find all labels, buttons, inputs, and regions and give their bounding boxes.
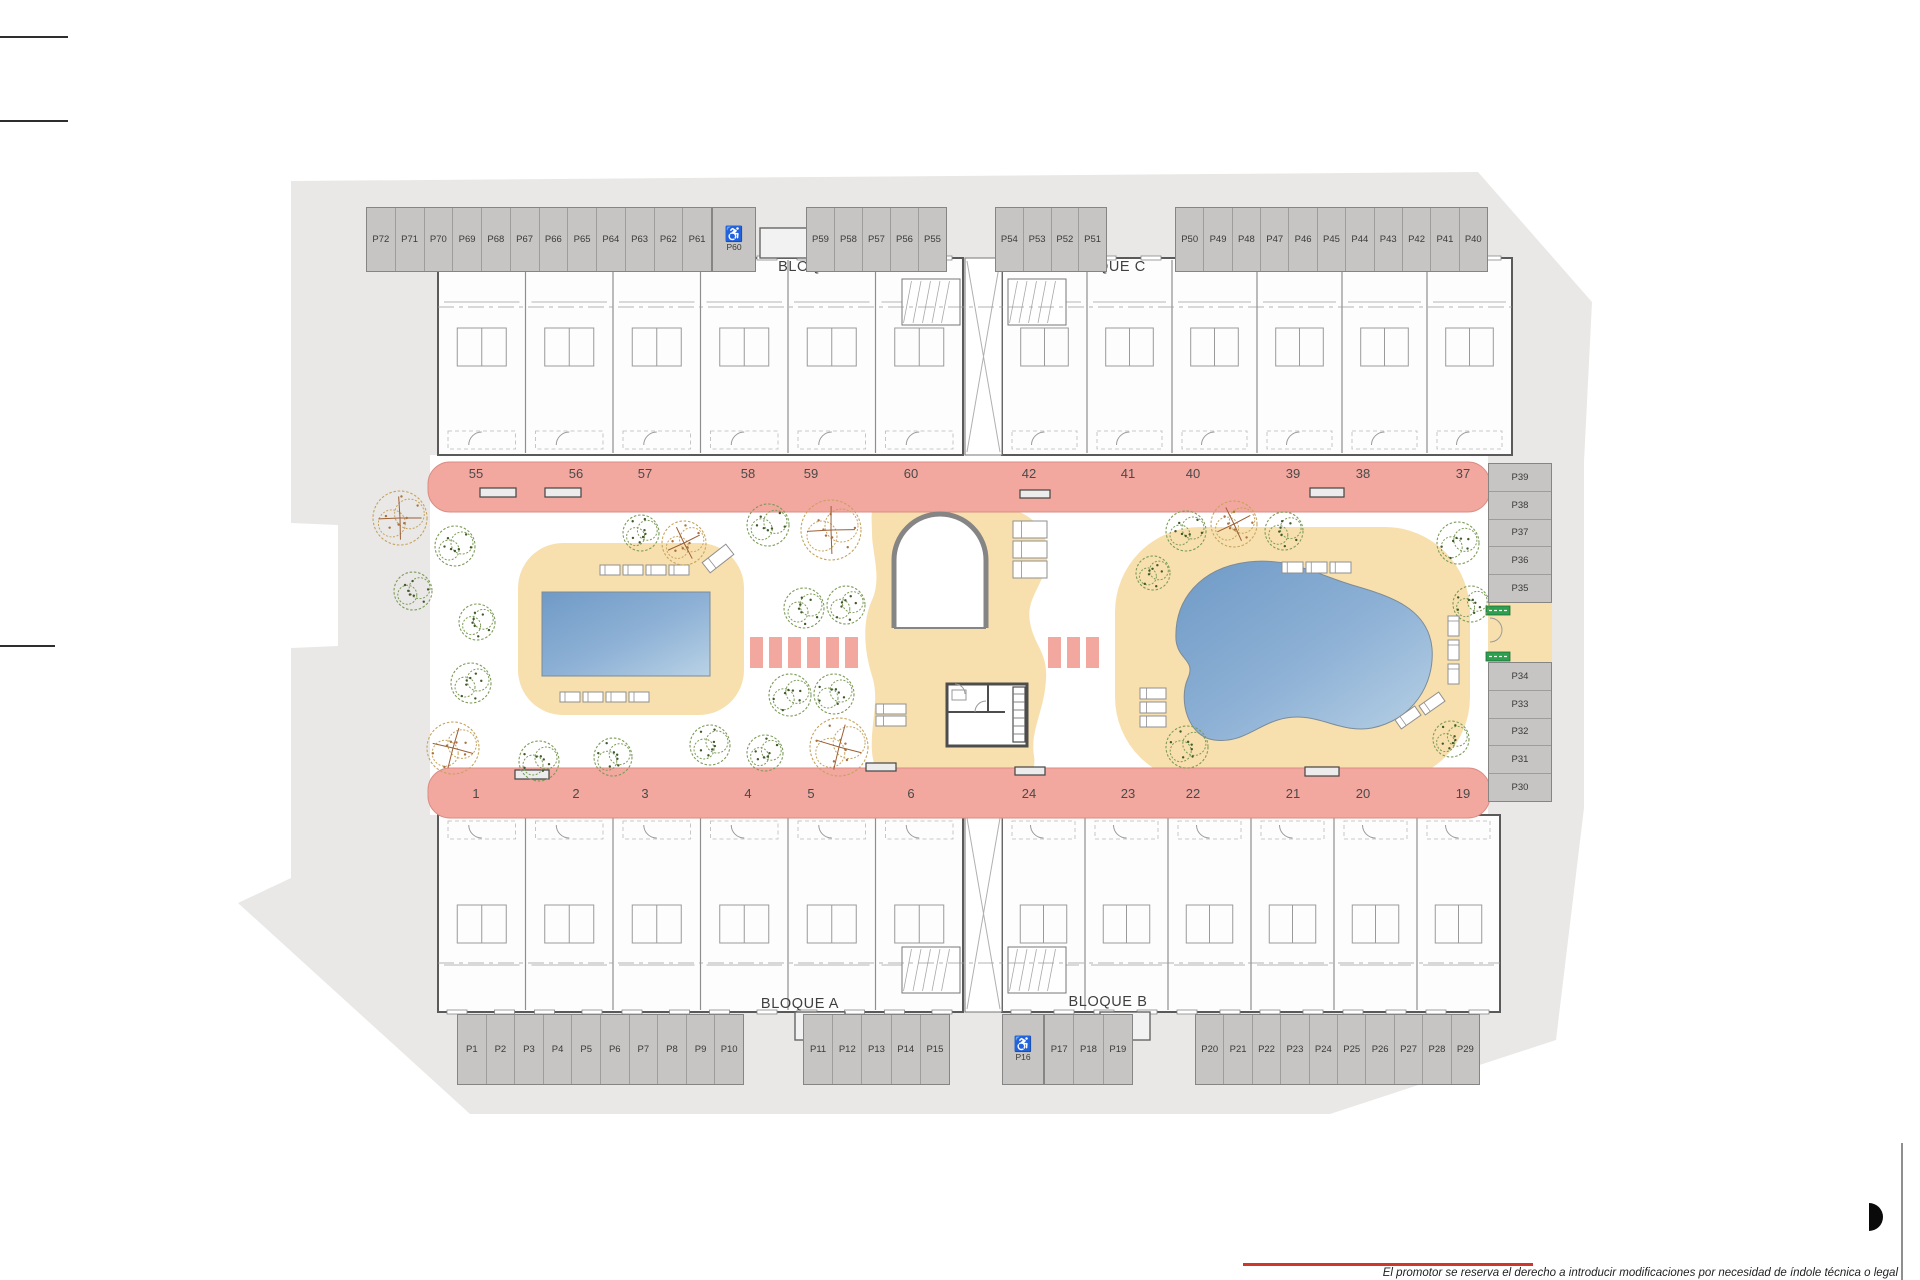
parking-stall-label: P62	[660, 234, 677, 245]
parking-stall: P4	[544, 1015, 573, 1084]
unit-number: 59	[804, 466, 818, 481]
unit-number: 4	[744, 786, 751, 801]
parking-stall-label: P36	[1512, 555, 1529, 566]
parking-stall-label: P48	[1238, 234, 1255, 245]
parking-stall: P24	[1310, 1015, 1338, 1084]
block-label-a: BLOQUE A	[761, 996, 839, 1012]
parking-stall-label: P30	[1512, 782, 1529, 793]
unit-number: 3	[641, 786, 648, 801]
unit-number: 57	[638, 466, 652, 481]
parking-stall: P58	[835, 208, 863, 271]
service-building	[947, 684, 1027, 746]
parking-stall: P20	[1196, 1015, 1224, 1084]
page-tick-mid	[0, 645, 55, 647]
unit-number: 1	[472, 786, 479, 801]
parking-stall: P25	[1338, 1015, 1366, 1084]
parking-stall-label: P25	[1343, 1044, 1360, 1055]
unit-number: 6	[907, 786, 914, 801]
parking-stall: P51	[1079, 208, 1106, 271]
parking-stall-label: P61	[689, 234, 706, 245]
parking-stall: P64	[597, 208, 626, 271]
parking-stall-label: P60	[726, 242, 741, 252]
unit-number: 23	[1121, 786, 1135, 801]
parking-stall-label: P24	[1315, 1044, 1332, 1055]
accessible-parking-stall: ♿P60	[713, 208, 755, 271]
parking-stall: P49	[1204, 208, 1232, 271]
parking-stall: P48	[1233, 208, 1261, 271]
parking-stall-label: P13	[868, 1044, 885, 1055]
site-plan-canvas: El promotor se reserva el derecho a intr…	[0, 0, 1920, 1280]
parking-stall-label: P26	[1372, 1044, 1389, 1055]
parking-stall-label: P32	[1512, 726, 1529, 737]
parking-stall: P67	[511, 208, 540, 271]
parking-stall-label: P6	[609, 1044, 621, 1055]
parking-stall: P57	[863, 208, 891, 271]
parking-stall-label: P39	[1512, 472, 1529, 483]
unit-number: 41	[1121, 466, 1135, 481]
parking-stall: P40	[1460, 208, 1487, 271]
parking-stall: P12	[833, 1015, 862, 1084]
parking-stall: P45	[1318, 208, 1346, 271]
parking-stall: P10	[715, 1015, 743, 1084]
site-plan-drawing	[0, 0, 1920, 1280]
parking-stall-label: P16	[1015, 1052, 1030, 1062]
unit-number: 5	[807, 786, 814, 801]
unit-number: 38	[1356, 466, 1370, 481]
parking-stall-label: P27	[1400, 1044, 1417, 1055]
parking-stall: P62	[655, 208, 684, 271]
parking-stall-label: P67	[516, 234, 533, 245]
page-tick-top2	[0, 120, 68, 122]
parking-stall-label: P53	[1029, 234, 1046, 245]
parking-stall-label: P65	[574, 234, 591, 245]
parking-stall: P17	[1045, 1015, 1074, 1084]
parking-stall-label: P28	[1429, 1044, 1446, 1055]
parking-stall: P39	[1489, 464, 1551, 492]
parking-stall-label: P5	[580, 1044, 592, 1055]
parking-stall: P63	[626, 208, 655, 271]
unit-number: 21	[1286, 786, 1300, 801]
parking-stall-label: P64	[602, 234, 619, 245]
parking-stall-label: P52	[1056, 234, 1073, 245]
parking-stall: P65	[568, 208, 597, 271]
parking-stall-label: P34	[1512, 671, 1529, 682]
parking-stall-label: P29	[1457, 1044, 1474, 1055]
parking-stall-label: P10	[721, 1044, 738, 1055]
parking-stall-label: P15	[926, 1044, 943, 1055]
accessible-parking-stall: ♿P16	[1003, 1015, 1043, 1084]
unit-number: 20	[1356, 786, 1370, 801]
parking-stall-label: P70	[430, 234, 447, 245]
unit-number: 42	[1022, 466, 1036, 481]
parking-group-top_right: P50P49P48P47P46P45P44P43P42P41P40	[1175, 207, 1488, 272]
parking-stall: P61	[683, 208, 711, 271]
parking-stall: P66	[540, 208, 569, 271]
parking-stall: P47	[1261, 208, 1289, 271]
parking-stall-label: P20	[1201, 1044, 1218, 1055]
parking-stall-label: P14	[897, 1044, 914, 1055]
parking-stall-label: P22	[1258, 1044, 1275, 1055]
parking-group-top_left_accessible: ♿P60	[712, 207, 756, 272]
parking-group-top_mid: P59P58P57P56P55	[806, 207, 947, 272]
parking-group-right_upper: P39P38P37P36P35	[1488, 463, 1552, 603]
unit-number: 58	[741, 466, 755, 481]
parking-stall-label: P68	[487, 234, 504, 245]
parking-stall-label: P43	[1380, 234, 1397, 245]
parking-stall: P44	[1346, 208, 1374, 271]
parking-stall: P46	[1289, 208, 1317, 271]
left-pool	[542, 592, 710, 676]
parking-stall-label: P63	[631, 234, 648, 245]
parking-stall: P31	[1489, 746, 1551, 774]
parking-group-bottom_mid: P11P12P13P14P15	[803, 1014, 950, 1085]
parking-stall-label: P59	[812, 234, 829, 245]
parking-stall: P14	[892, 1015, 921, 1084]
parking-stall: P21	[1224, 1015, 1252, 1084]
parking-stall-label: P44	[1351, 234, 1368, 245]
parking-stall-label: P7	[638, 1044, 650, 1055]
parking-stall-label: P40	[1465, 234, 1482, 245]
page-tick-top1	[0, 36, 68, 38]
parking-stall: P9	[687, 1015, 716, 1084]
parking-stall-label: P54	[1001, 234, 1018, 245]
parking-stall: P56	[891, 208, 919, 271]
parking-stall-label: P55	[924, 234, 941, 245]
parking-stall: P34	[1489, 663, 1551, 691]
parking-stall: P1	[458, 1015, 487, 1084]
parking-stall: P53	[1024, 208, 1052, 271]
parking-stall-label: P37	[1512, 527, 1529, 538]
parking-stall: P29	[1452, 1015, 1479, 1084]
parking-stall-label: P3	[523, 1044, 535, 1055]
parking-stall: P23	[1281, 1015, 1309, 1084]
parking-stall: P26	[1366, 1015, 1394, 1084]
parking-stall: P43	[1375, 208, 1403, 271]
parking-stall: P28	[1423, 1015, 1451, 1084]
parking-stall-label: P4	[552, 1044, 564, 1055]
wheelchair-icon: ♿	[1014, 1037, 1033, 1053]
parking-stall: P27	[1395, 1015, 1423, 1084]
parking-stall-label: P51	[1084, 234, 1101, 245]
parking-stall-label: P66	[545, 234, 562, 245]
parking-stall-label: P1	[466, 1044, 478, 1055]
parking-stall-label: P49	[1210, 234, 1227, 245]
arched-structure	[894, 514, 986, 628]
parking-stall: P54	[996, 208, 1024, 271]
block-label-b: BLOQUE B	[1069, 994, 1148, 1010]
parking-stall-label: P46	[1295, 234, 1312, 245]
wheelchair-icon: ♿	[725, 227, 744, 243]
parking-stall-label: P47	[1266, 234, 1283, 245]
unit-number: 2	[572, 786, 579, 801]
parking-stall: P38	[1489, 492, 1551, 520]
parking-stall: P3	[515, 1015, 544, 1084]
parking-stall: P2	[487, 1015, 516, 1084]
parking-group-top_mid2: P54P53P52P51	[995, 207, 1107, 272]
parking-stall-label: P18	[1080, 1044, 1097, 1055]
parking-stall: P13	[862, 1015, 891, 1084]
unit-number: 56	[569, 466, 583, 481]
parking-stall: P71	[396, 208, 425, 271]
parking-stall-label: P38	[1512, 500, 1529, 511]
parking-group-right_lower: P34P33P32P31P30	[1488, 662, 1552, 802]
parking-stall: P32	[1489, 719, 1551, 747]
parking-stall: P37	[1489, 520, 1551, 548]
parking-stall: P69	[453, 208, 482, 271]
parking-stall: P8	[658, 1015, 687, 1084]
parking-stall: P35	[1489, 575, 1551, 602]
parking-group-bottom_mid2: P17P18P19	[1044, 1014, 1133, 1085]
unit-number: 39	[1286, 466, 1300, 481]
parking-stall-label: P41	[1436, 234, 1453, 245]
parking-stall: P55	[919, 208, 946, 271]
parking-stall-label: P19	[1109, 1044, 1126, 1055]
parking-stall-label: P11	[810, 1044, 826, 1055]
parking-stall-label: P8	[666, 1044, 678, 1055]
parking-stall-label: P50	[1181, 234, 1198, 245]
parking-stall-label: P2	[495, 1044, 507, 1055]
parking-group-bottom_right: P20P21P22P23P24P25P26P27P28P29	[1195, 1014, 1480, 1085]
page-edge-line	[1901, 1143, 1903, 1280]
parking-stall-label: P12	[839, 1044, 856, 1055]
parking-stall: P41	[1431, 208, 1459, 271]
parking-stall-label: P42	[1408, 234, 1425, 245]
parking-stall: P36	[1489, 547, 1551, 575]
parking-stall-label: P45	[1323, 234, 1340, 245]
parking-stall-label: P21	[1230, 1044, 1247, 1055]
parking-stall-label: P23	[1286, 1044, 1303, 1055]
parking-stall: P50	[1176, 208, 1204, 271]
unit-number: 19	[1456, 786, 1470, 801]
disclaimer-rule	[1243, 1263, 1533, 1266]
unit-number: 22	[1186, 786, 1200, 801]
parking-stall-label: P58	[840, 234, 857, 245]
parking-stall: P33	[1489, 691, 1551, 719]
parking-stall-label: P35	[1512, 583, 1529, 594]
parking-group-top_left: P72P71P70P69P68P67P66P65P64P63P62P61	[366, 207, 712, 272]
parking-stall: P22	[1253, 1015, 1281, 1084]
parking-stall-label: P33	[1512, 699, 1529, 710]
parking-stall-label: P56	[896, 234, 913, 245]
parking-group-bottom_left: P1P2P3P4P5P6P7P8P9P10	[457, 1014, 744, 1085]
unit-number: 60	[904, 466, 918, 481]
parking-stall-label: P69	[459, 234, 476, 245]
parking-stall: P11	[804, 1015, 833, 1084]
unit-number: 55	[469, 466, 483, 481]
parking-stall-label: P71	[401, 234, 418, 245]
parking-stall: P72	[367, 208, 396, 271]
parking-group-bottom_accessible: ♿P16	[1002, 1014, 1044, 1085]
parking-stall-label: P72	[372, 234, 389, 245]
parking-stall: P52	[1052, 208, 1080, 271]
parking-stall: P70	[425, 208, 454, 271]
unit-number: 24	[1022, 786, 1036, 801]
parking-stall: P59	[807, 208, 835, 271]
disclaimer-text: El promotor se reserva el derecho a intr…	[1383, 1267, 1898, 1279]
parking-stall-label: P57	[868, 234, 885, 245]
parking-stall-label: P17	[1051, 1044, 1068, 1055]
parking-stall: P15	[921, 1015, 949, 1084]
parking-stall: P68	[482, 208, 511, 271]
parking-stall: P7	[630, 1015, 659, 1084]
parking-stall: P6	[601, 1015, 630, 1084]
parking-stall: P18	[1074, 1015, 1103, 1084]
parking-stall: P42	[1403, 208, 1431, 271]
parking-stall-label: P31	[1512, 754, 1529, 765]
unit-number: 40	[1186, 466, 1200, 481]
parking-stall: P30	[1489, 774, 1551, 801]
parking-stall: P5	[572, 1015, 601, 1084]
unit-number: 37	[1456, 466, 1470, 481]
parking-stall-label: P9	[695, 1044, 707, 1055]
parking-stall: P19	[1104, 1015, 1132, 1084]
